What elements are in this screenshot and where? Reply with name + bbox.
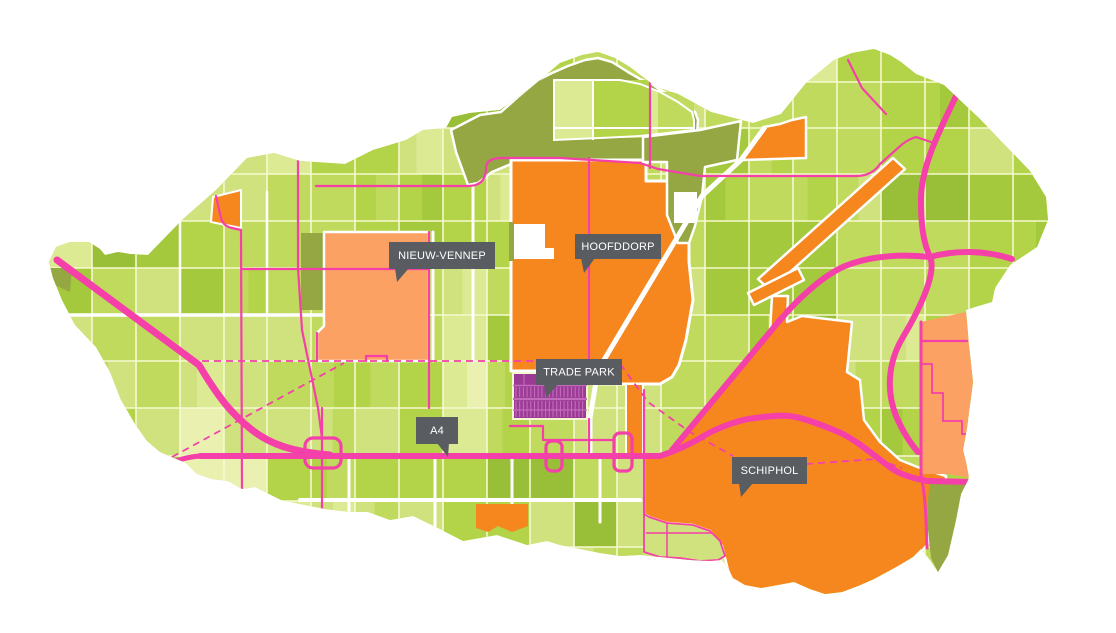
svg-text:NIEUW-VENNEP: NIEUW-VENNEP [398, 250, 486, 262]
svg-text:TRADE PARK: TRADE PARK [543, 367, 615, 379]
svg-text:A4: A4 [430, 425, 444, 437]
svg-text:SCHIPHOL: SCHIPHOL [741, 465, 799, 477]
svg-text:HOOFDDORP: HOOFDDORP [581, 241, 654, 253]
